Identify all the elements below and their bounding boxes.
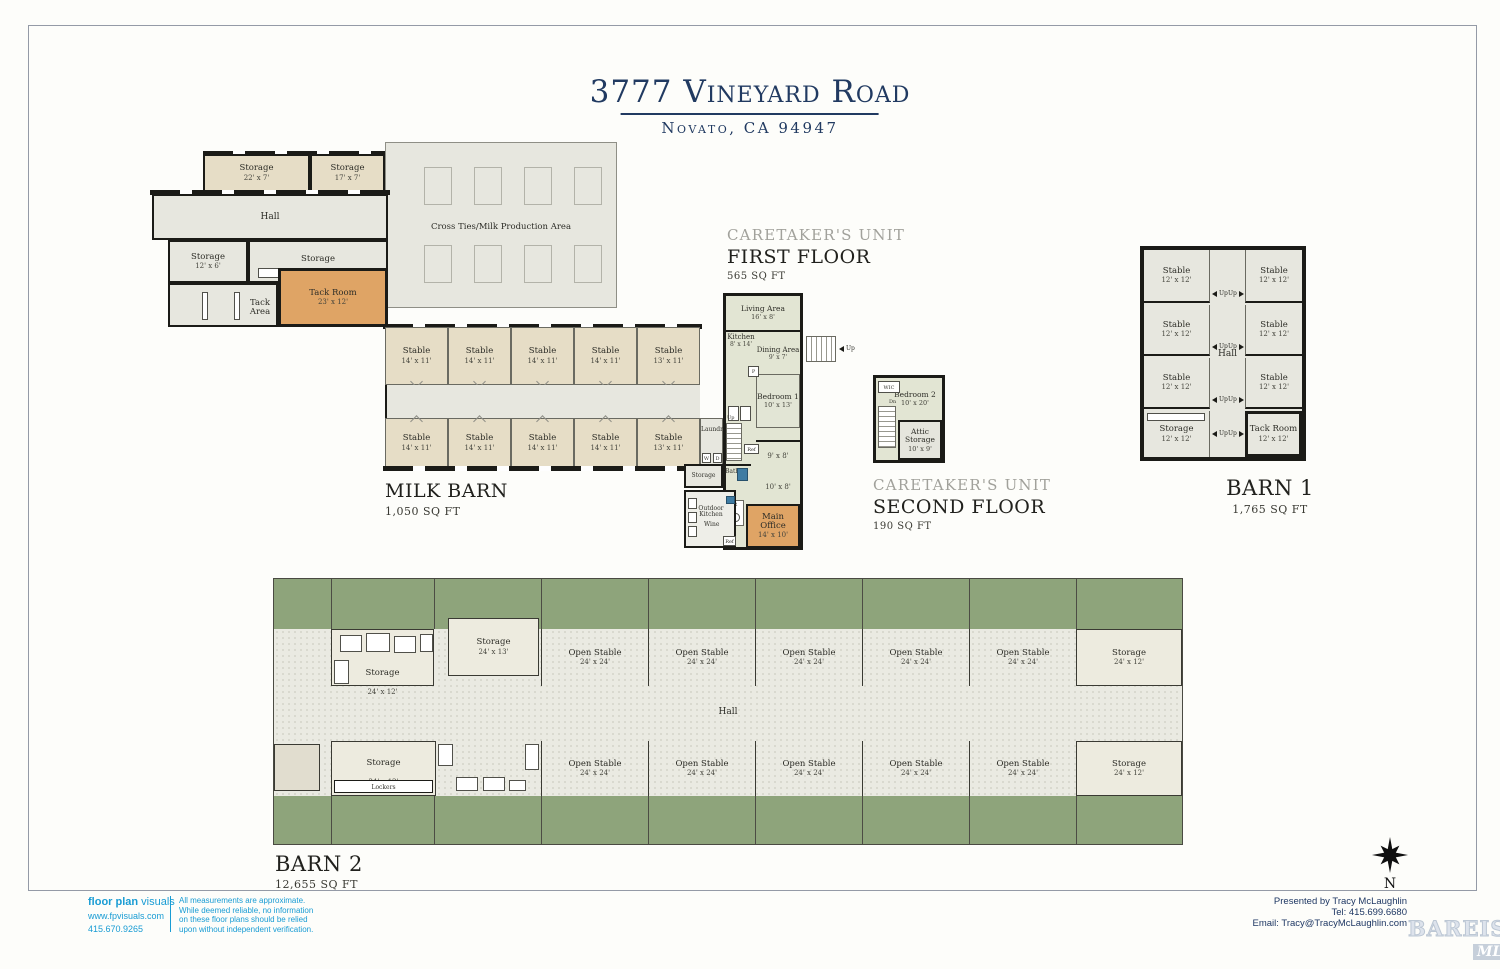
locker-box xyxy=(394,636,416,653)
milk-barn-heading: MILK BARN 1,050 SQ FT xyxy=(385,480,508,518)
section-sqft: 1,765 SQ FT xyxy=(1210,503,1330,516)
title-block: 3777 Vineyard Road Novato, CA 94947 xyxy=(590,74,911,137)
room-label: Stable xyxy=(655,347,683,356)
cabinet xyxy=(456,777,478,791)
room-label: Stable xyxy=(1163,321,1191,330)
stall-box xyxy=(474,167,502,205)
room-dims: 14' x 11' xyxy=(464,358,494,365)
room-dims: 24' x 12' xyxy=(367,688,397,696)
room-label: Stable xyxy=(466,347,494,356)
up-text: Up xyxy=(1228,396,1237,403)
paddock-divider xyxy=(541,796,542,844)
section-title: BARN 2 xyxy=(275,852,363,876)
room-label: Stable xyxy=(655,434,683,443)
cabinet xyxy=(688,512,697,523)
room-label: Open Stable xyxy=(889,649,942,658)
room-stable: Stable 14' x 11' xyxy=(448,418,511,468)
room-open-stable: Open Stable 24' x 24' xyxy=(862,741,969,796)
room-dims: 24' x 24' xyxy=(1008,659,1038,666)
page-subtitle: Novato, CA 94947 xyxy=(590,119,911,137)
washer: W xyxy=(702,453,711,463)
paddock-divider xyxy=(541,579,542,629)
room-dims: 16' x 8' xyxy=(751,314,775,321)
stall-box xyxy=(524,245,552,283)
room-dims: 24' x 24' xyxy=(580,770,610,777)
room-storage: Storage 12' x 12' xyxy=(1144,411,1210,457)
unit-label: CARETAKER'S UNIT xyxy=(873,476,1051,494)
room-label: Storage xyxy=(240,164,274,173)
door-swing xyxy=(599,415,612,428)
section-title: MILK BARN xyxy=(385,480,508,502)
wall xyxy=(383,466,702,471)
disclaimer-line: While deemed reliable, no information xyxy=(179,906,313,916)
up-label: Up xyxy=(1228,396,1244,403)
paddock-divider xyxy=(1076,796,1077,844)
cabinet xyxy=(438,744,453,766)
paddock-divider xyxy=(331,796,332,844)
room-label: Stable xyxy=(592,434,620,443)
room-label: Stable xyxy=(403,347,431,356)
paddock-divider xyxy=(648,579,649,629)
room-label: Open Stable xyxy=(568,649,621,658)
room-label: Stable xyxy=(529,434,557,443)
barn1-heading: BARN 1 1,765 SQ FT xyxy=(1210,476,1330,516)
paddock-divider xyxy=(755,796,756,844)
paddock-divider xyxy=(1076,579,1077,629)
room-label: Storage xyxy=(1160,425,1194,434)
room-label: Storage xyxy=(331,164,365,173)
section-title: SECOND FLOOR xyxy=(873,496,1051,518)
room-label: Stable xyxy=(529,347,557,356)
room-stable: Stable 14' x 11' xyxy=(385,327,448,385)
footer-phone[interactable]: 415.670.9265 xyxy=(88,924,175,934)
lockers: Lockers xyxy=(334,780,433,793)
room-label: Storage xyxy=(191,253,225,262)
locker-box xyxy=(340,635,362,652)
room-10x8: 10' x 8' xyxy=(756,472,800,502)
shower xyxy=(737,468,748,481)
room-dims: 23' x 12' xyxy=(318,299,348,306)
room-label: Open Stable xyxy=(996,760,1049,769)
room-hall: Hall xyxy=(1211,250,1244,457)
room-storage: Storage 24' x 12' xyxy=(331,629,434,686)
up-label: Up xyxy=(1228,343,1244,350)
room-label: Open Stable xyxy=(675,760,728,769)
room-label: Attic Storage xyxy=(900,428,940,445)
room-unlabeled xyxy=(274,744,320,791)
stairs-dn-label: Dn xyxy=(889,400,896,405)
room-dims: 10' x 13' xyxy=(764,402,792,409)
room-dims: 14' x 11' xyxy=(590,445,620,452)
section-sqft: 12,655 SQ FT xyxy=(275,878,363,891)
caretakers-second-heading: CARETAKER'S UNIT SECOND FLOOR 190 SQ FT xyxy=(873,476,1051,532)
room-open-stable: Open Stable 24' x 24' xyxy=(969,629,1076,686)
room-storage: Storage 24' x 12' xyxy=(1076,741,1182,796)
room-dims: 8' x 14' xyxy=(726,342,756,348)
room-label: Storage xyxy=(477,638,511,647)
page-title: 3777 Vineyard Road xyxy=(590,74,911,110)
arrow-icon xyxy=(1212,344,1217,350)
paddock-strip xyxy=(274,796,1182,844)
up-label: Up xyxy=(1212,343,1228,350)
room-label: Tack Room xyxy=(1250,425,1297,434)
arrow-icon xyxy=(1212,397,1217,403)
up-text: Up xyxy=(1228,430,1237,437)
paddock-divider xyxy=(755,579,756,629)
room-storage: Storage 22' x 7' xyxy=(203,154,310,192)
room-hall: Hall xyxy=(152,194,388,240)
disclaimer-line: upon without independent verification. xyxy=(179,925,313,935)
room-label: Storage xyxy=(686,473,721,479)
room-dims: 12' x 12' xyxy=(1259,331,1289,338)
room-stable: Stable 14' x 11' xyxy=(385,418,448,468)
room-label: Stable xyxy=(1260,321,1288,330)
room-dims: 12' x 12' xyxy=(1258,436,1288,443)
room-dims: 14' x 10' xyxy=(758,532,788,539)
room-label: Stable xyxy=(592,347,620,356)
room-stable: Stable 14' x 11' xyxy=(511,418,574,468)
compass-n-label: N xyxy=(1368,876,1412,892)
room-stable: Stable 14' x 11' xyxy=(574,418,637,468)
up-label: Up xyxy=(1212,396,1228,403)
up-text: Up xyxy=(1219,290,1228,297)
room-open-stable: Open Stable 24' x 24' xyxy=(648,629,755,686)
room-label: Open Stable xyxy=(675,649,728,658)
room-dims: 12' x 12' xyxy=(1161,436,1191,443)
room-open-stable: Open Stable 24' x 24' xyxy=(755,741,862,796)
section-sqft: 1,050 SQ FT xyxy=(385,505,508,518)
room-storage: Storage 12' x 6' xyxy=(168,240,248,283)
sink xyxy=(726,496,735,504)
section-title: BARN 1 xyxy=(1210,476,1330,500)
room-storage: Storage 24' x 12' xyxy=(1076,629,1182,686)
room-stable: Stable 14' x 11' xyxy=(574,327,637,385)
room-dims: 12' x 12' xyxy=(1259,277,1289,284)
floor-plan-page: 3777 Vineyard Road Novato, CA 94947 Stor… xyxy=(0,0,1500,969)
room-dims: 12' x 12' xyxy=(1161,277,1191,284)
room-stable: Stable 12' x 12' xyxy=(1144,305,1210,356)
room-tack-room: Tack Room 12' x 12' xyxy=(1245,411,1302,457)
paddock-divider xyxy=(969,579,970,629)
title-underline xyxy=(621,113,879,115)
room-dims: 24' x 12' xyxy=(1114,659,1144,666)
paddock-divider xyxy=(434,579,435,629)
room-attic-storage: Attic Storage 10' x 9' xyxy=(898,420,942,460)
door-swing xyxy=(536,415,549,428)
unit-label: CARETAKER'S UNIT xyxy=(727,226,905,244)
exterior-stairs xyxy=(806,336,836,362)
locker-box xyxy=(366,633,390,652)
up-text: Up xyxy=(846,346,855,352)
watermark: BAREIS® MLS xyxy=(1408,916,1500,960)
room-label: Cross Ties/Milk Production Area xyxy=(386,223,616,232)
room-dims: 14' x 11' xyxy=(590,358,620,365)
section-title: FIRST FLOOR xyxy=(727,246,905,268)
up-text: Up xyxy=(1228,343,1237,350)
room-label: Dining Area xyxy=(757,347,800,355)
room-main-office: Main Office 14' x 10' xyxy=(746,504,800,548)
room-dims: 14' x 11' xyxy=(527,358,557,365)
room-open-stable: Open Stable 24' x 24' xyxy=(648,741,755,796)
room-label: Main Office xyxy=(748,513,798,532)
barn2-plan: Hall Storage 24' x 12' Storage 24' x 13'… xyxy=(273,578,1183,845)
room-dims: 10' x 9' xyxy=(908,446,932,453)
room-dims: 24' x 24' xyxy=(794,770,824,777)
up-text: Up xyxy=(1219,343,1228,350)
room-dims: 22' x 7' xyxy=(244,175,270,182)
room-label: Stable xyxy=(1260,267,1288,276)
room-label: Tack Room xyxy=(309,289,356,298)
stall-box xyxy=(474,245,502,283)
footer-contact: Presented by Tracy McLaughlin Tel: 415.6… xyxy=(1140,896,1407,929)
arrow-icon xyxy=(1212,431,1217,437)
room-label: Storage xyxy=(301,254,335,264)
room-label: Laundry xyxy=(701,427,722,433)
room-stable: Stable 12' x 12' xyxy=(1245,305,1302,356)
barn1-plan: Stable 12' x 12' Stable 12' x 12' Stable… xyxy=(1140,246,1306,461)
room-dims: 12' x 12' xyxy=(1259,384,1289,391)
door-swing xyxy=(473,415,486,428)
compass: N xyxy=(1368,836,1412,892)
room-label: Hall xyxy=(261,212,280,222)
room-dims: 10' x 8' xyxy=(765,484,791,491)
room-label: Tack Area xyxy=(242,299,278,318)
room-label: Storage xyxy=(1112,760,1146,769)
watermark-bareis: BAREIS xyxy=(1408,916,1500,941)
paddock-strip xyxy=(274,579,1182,629)
caretakers-first-heading: CARETAKER'S UNIT FIRST FLOOR 565 SQ FT xyxy=(727,226,905,282)
up-label: Up xyxy=(1228,290,1244,297)
room-wic: WIC xyxy=(878,381,900,393)
up-text: Up xyxy=(1219,430,1228,437)
room-dims: 14' x 11' xyxy=(464,445,494,452)
room-storage: Storage 24' x 12' Lockers xyxy=(331,741,436,796)
room-label: Open Stable xyxy=(782,649,835,658)
room-dims: 14' x 11' xyxy=(401,358,431,365)
room-open-stable: Open Stable 24' x 24' xyxy=(541,741,648,796)
room-stable: Stable 13' x 11' xyxy=(637,327,700,385)
room-label: Stable xyxy=(1163,267,1191,276)
room-dims: 24' x 13' xyxy=(478,649,508,656)
paddock-divider xyxy=(434,796,435,844)
room-stable: Stable 12' x 12' xyxy=(1144,250,1210,303)
room-dims: 24' x 24' xyxy=(794,659,824,666)
room-label-wine: Wine xyxy=(704,522,734,528)
arrow-icon xyxy=(839,346,844,352)
room-label: Bedroom 1 xyxy=(757,393,799,401)
stairs-up-label: Up xyxy=(839,346,855,352)
disclaimer-line: on these floor plans should be relied xyxy=(179,915,313,925)
room-dims: 12' x 12' xyxy=(1161,331,1191,338)
room-tack-area: Tack Area xyxy=(168,283,278,327)
room-stable: Stable 14' x 11' xyxy=(511,327,574,385)
room-label: Stable xyxy=(403,434,431,443)
up-label: Up xyxy=(1212,290,1228,297)
cabinet xyxy=(483,777,505,791)
up-text: Up xyxy=(1219,396,1228,403)
room-dims: 9' x 8' xyxy=(767,453,788,460)
footer-website-link[interactable]: www.fpvisuals.com xyxy=(88,911,175,921)
post xyxy=(202,292,208,320)
presented-by: Presented by Tracy McLaughlin xyxy=(1140,896,1407,907)
room-dims: 24' x 24' xyxy=(687,770,717,777)
stall-box xyxy=(424,245,452,283)
room-dims: 14' x 11' xyxy=(401,445,431,452)
barn2-heading: BARN 2 12,655 SQ FT xyxy=(275,852,363,891)
room-label: Open Stable xyxy=(996,649,1049,658)
contact-email[interactable]: Email: Tracy@TracyMcLaughlin.com xyxy=(1140,918,1407,929)
arrow-icon xyxy=(1239,397,1244,403)
arrow-icon xyxy=(1239,431,1244,437)
up-label: Up xyxy=(1228,430,1244,437)
room-label: Storage xyxy=(1112,649,1146,658)
room-stable: Stable 12' x 12' xyxy=(1245,250,1302,303)
door-swing xyxy=(410,415,423,428)
room-open-stable: Open Stable 24' x 24' xyxy=(969,741,1076,796)
contact-tel[interactable]: Tel: 415.699.6680 xyxy=(1140,907,1407,918)
cabinet xyxy=(688,498,697,509)
section-sqft: 565 SQ FT xyxy=(727,271,905,282)
room-dims: 14' x 11' xyxy=(527,445,557,452)
room-living-area: Living Area 16' x 8' xyxy=(726,296,800,332)
footer-disclaimer: All measurements are approximate. While … xyxy=(179,896,313,934)
room-open-stable: Open Stable 24' x 24' xyxy=(541,629,648,686)
room-label: Outdoor Kitchen xyxy=(696,506,726,518)
up-text: Up xyxy=(1228,290,1237,297)
room-open-stable: Open Stable 24' x 24' xyxy=(755,629,862,686)
footer-logo-block: floor plan visuals www.fpvisuals.com 415… xyxy=(88,896,175,934)
refrigerator: Ref xyxy=(723,536,736,546)
room-dims: 12' x 6' xyxy=(195,263,221,270)
arrow-icon xyxy=(1212,291,1217,297)
room-bedroom1: Bedroom 1 10' x 13' xyxy=(756,374,800,428)
room-hall: Hall xyxy=(698,707,758,717)
footer-divider xyxy=(170,896,171,932)
stall-box xyxy=(574,245,602,283)
room-stable: Stable 12' x 12' xyxy=(1144,358,1210,409)
logo-bold: floor plan xyxy=(88,896,138,908)
room-dims: 24' x 24' xyxy=(901,659,931,666)
room-cross-ties: Cross Ties/Milk Production Area xyxy=(385,142,617,308)
room-dims: 24' x 24' xyxy=(580,659,610,666)
room-open-stable: Open Stable 24' x 24' xyxy=(862,629,969,686)
room-label: Hall xyxy=(1218,349,1237,359)
up-label: Up xyxy=(1212,430,1228,437)
breezeway xyxy=(385,385,700,418)
room-laundry: Laundry W D xyxy=(700,418,723,468)
arrow-icon xyxy=(1239,291,1244,297)
room-dims: 24' x 24' xyxy=(901,770,931,777)
room-dims: 24' x 12' xyxy=(1114,770,1144,777)
room-label: Open Stable xyxy=(568,760,621,769)
room-outdoor-kitchen: Outdoor Kitchen Wine Ref xyxy=(684,490,736,548)
room-label: Bedroom 2 xyxy=(894,391,936,399)
room-label: Open Stable xyxy=(889,760,942,769)
paddock-divider xyxy=(331,579,332,629)
post xyxy=(234,292,240,320)
door-swing xyxy=(662,415,675,428)
paddock-divider xyxy=(862,579,863,629)
room-dims: 13' x 11' xyxy=(653,358,683,365)
arrow-icon xyxy=(1239,344,1244,350)
room-label: Storage xyxy=(367,758,401,768)
room-stable: Stable 12' x 12' xyxy=(1245,358,1302,409)
stall-box xyxy=(424,167,452,205)
section-sqft: 190 SQ FT xyxy=(873,521,1051,532)
room-tack-room: Tack Room 23' x 12' xyxy=(278,268,388,327)
room-label: Stable xyxy=(466,434,494,443)
compass-icon xyxy=(1371,836,1409,874)
cabinet xyxy=(688,526,697,537)
room-dims: 12' x 12' xyxy=(1161,384,1191,391)
cabinet xyxy=(740,406,751,421)
room-stable: Stable 13' x 11' xyxy=(637,418,700,468)
interior-stairs xyxy=(878,406,896,448)
room-dims: 17' x 7' xyxy=(335,175,361,182)
room-dims: 9' x 7' xyxy=(769,355,787,361)
room-dims: 24' x 24' xyxy=(1008,770,1038,777)
room-dims: 24' x 24' xyxy=(687,659,717,666)
dryer: D xyxy=(713,453,722,463)
room-label: Stable xyxy=(1260,374,1288,383)
cabinet xyxy=(509,780,526,791)
room-label: Open Stable xyxy=(782,760,835,769)
cabinet xyxy=(525,744,539,770)
counter xyxy=(1147,413,1205,421)
room-dims: 13' x 11' xyxy=(653,445,683,452)
room-storage: Storage 17' x 7' xyxy=(310,154,385,192)
caretakers-second-plan: Bedroom 2 10' x 20' WIC Dn Attic Storage… xyxy=(873,375,945,463)
stairs-up-label: Up xyxy=(727,416,734,421)
room-dining-area: Dining Area 9' x 7' xyxy=(756,334,800,374)
stall-box xyxy=(574,167,602,205)
room-stable: Stable 14' x 11' xyxy=(448,327,511,385)
paddock-divider xyxy=(648,796,649,844)
room-9x8: 9' x 8' xyxy=(756,440,800,470)
pantry: P xyxy=(748,366,759,377)
room-label: Storage xyxy=(366,668,400,678)
paddock-divider xyxy=(969,796,970,844)
room-label: Stable xyxy=(1163,374,1191,383)
paddock-divider xyxy=(862,796,863,844)
stall-box xyxy=(524,167,552,205)
disclaimer-line: All measurements are approximate. xyxy=(179,896,313,906)
room-label: Living Area xyxy=(741,305,785,313)
watermark-mls: MLS xyxy=(1473,944,1500,960)
room-dims: 10' x 20' xyxy=(901,400,929,407)
locker-box xyxy=(420,634,433,652)
interior-stairs xyxy=(726,423,742,461)
room-storage-annex: Storage xyxy=(684,464,723,488)
room-storage: Storage 24' x 13' xyxy=(448,618,539,676)
